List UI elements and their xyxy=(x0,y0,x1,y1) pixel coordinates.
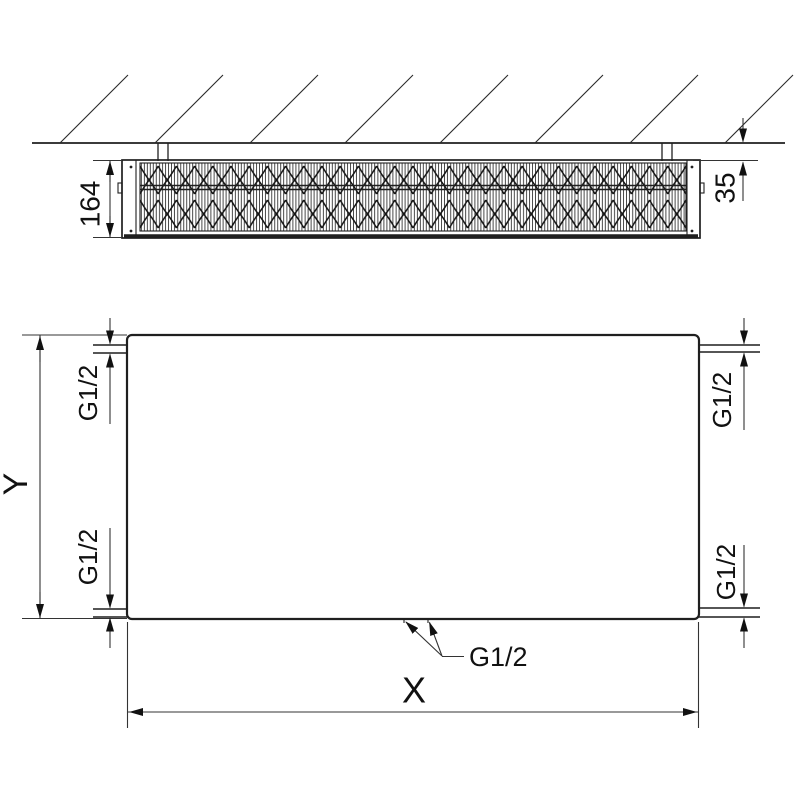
connection-stub-bottom-right xyxy=(698,608,760,617)
height-dimension-label: Y xyxy=(0,473,35,496)
radiator-front-panel xyxy=(127,335,699,619)
dimension-thread-top-right: G1/2 xyxy=(707,318,744,430)
top-view-section: 164 35 xyxy=(32,75,793,238)
convector-fins xyxy=(140,163,686,231)
mounting-bracket-left xyxy=(158,143,168,161)
dimension-wall-distance: 35 xyxy=(693,118,758,204)
depth-dimension-label: 164 xyxy=(75,181,106,228)
thread-label-top-right: G1/2 xyxy=(707,372,737,428)
wall-distance-dimension-label: 35 xyxy=(710,172,741,203)
drawing-canvas: 164 35 xyxy=(0,0,800,800)
thread-label-bottom-left: G1/2 xyxy=(73,529,103,585)
wall xyxy=(32,75,793,143)
thread-label-bottom-center: G1/2 xyxy=(469,642,528,672)
connection-stub-top-right xyxy=(698,345,760,352)
radiator-cross-section xyxy=(118,160,704,238)
dimension-width: X xyxy=(128,622,699,728)
leader-bottom-connections: G1/2 xyxy=(406,622,528,672)
dimension-thread-bottom-left: G1/2 xyxy=(73,528,110,648)
dimension-depth: 164 xyxy=(75,161,123,238)
dimension-height: Y xyxy=(0,335,127,619)
dimension-thread-top-left: G1/2 xyxy=(73,318,110,424)
front-view-section: Y G1/2 G1/2 G1/2 G1/2 xyxy=(0,318,760,728)
radiator-technical-drawing: 164 35 xyxy=(0,0,800,800)
width-dimension-label: X xyxy=(402,670,426,711)
dimension-thread-bottom-right: G1/2 xyxy=(711,544,744,648)
connection-stub-top-left xyxy=(93,345,128,353)
wall-hatching xyxy=(60,75,793,143)
thread-label-top-left: G1/2 xyxy=(73,365,103,421)
connection-stub-bottom-left xyxy=(93,609,128,617)
thread-label-bottom-right: G1/2 xyxy=(711,544,741,600)
mounting-bracket-right xyxy=(662,143,672,161)
